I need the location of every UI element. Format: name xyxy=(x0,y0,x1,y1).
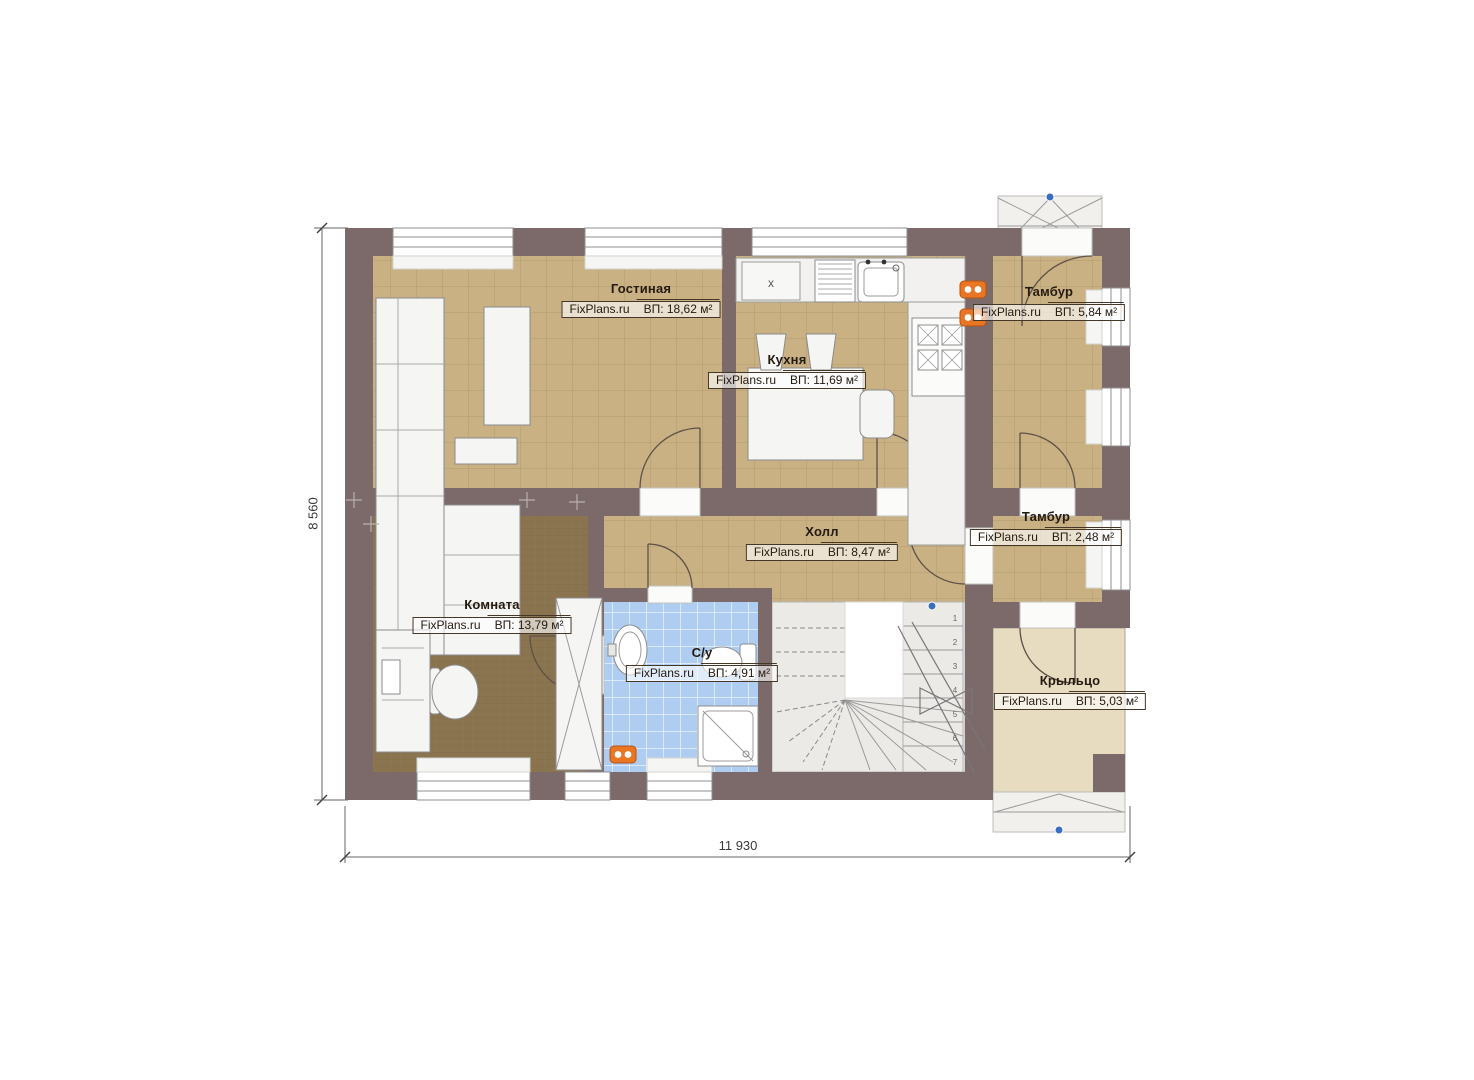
svg-text:5: 5 xyxy=(953,710,958,719)
svg-text:1: 1 xyxy=(953,614,958,623)
room-area: ВП: 4,91 м² xyxy=(701,663,777,682)
room-area: ВП: 13,79 м² xyxy=(488,615,571,634)
room-label-bedroom: Комната FixPlans.ruВП: 13,79 м² xyxy=(413,597,572,635)
wall-vestibule2-bottom-left xyxy=(993,602,1020,628)
window xyxy=(565,772,610,800)
room-label-porch: Крыльцо FixPlans.ruВП: 5,03 м² xyxy=(994,673,1146,711)
wall-kitchen-vestibule-lower xyxy=(965,584,993,628)
porch-pillar xyxy=(1093,754,1125,792)
room-name: Тамбур xyxy=(973,284,1125,300)
window xyxy=(1102,388,1130,446)
dimension-width: 11 930 xyxy=(698,838,778,853)
window xyxy=(647,772,712,800)
floor-plan-page: x xyxy=(0,0,1474,1080)
console-table xyxy=(484,307,530,425)
svg-text:6: 6 xyxy=(953,734,958,743)
window xyxy=(417,772,530,800)
marker-dot xyxy=(1055,826,1063,834)
wall-middle-2 xyxy=(700,488,877,516)
watermark: FixPlans.ru xyxy=(709,371,783,389)
watermark: FixPlans.ru xyxy=(974,303,1048,321)
watermark: FixPlans.ru xyxy=(995,692,1069,710)
chair xyxy=(860,390,894,438)
window xyxy=(752,228,907,256)
wall-left xyxy=(345,228,373,800)
desk-item xyxy=(382,660,400,694)
radiator xyxy=(610,746,636,763)
room-name: Крыльцо xyxy=(994,673,1146,689)
room-area: ВП: 8,47 м² xyxy=(821,542,897,561)
shower-tray xyxy=(698,706,758,766)
svg-text:3: 3 xyxy=(953,662,958,671)
marker-dot xyxy=(928,602,936,610)
room-name: Гостиная xyxy=(562,281,721,297)
room-label-hall: Холл FixPlans.ruВП: 8,47 м² xyxy=(746,524,898,562)
room-name: Кухня xyxy=(708,352,866,368)
room-name: Холл xyxy=(746,524,898,540)
room-label-bathroom: С/у FixPlans.ruВП: 4,91 м² xyxy=(626,645,778,683)
room-area: ВП: 11,69 м² xyxy=(783,370,865,389)
svg-text:2: 2 xyxy=(953,638,958,647)
watermark: FixPlans.ru xyxy=(971,528,1045,546)
room-name: Тамбур xyxy=(970,509,1122,525)
kitchen-cabinet-mark: x xyxy=(768,276,774,290)
desk-chair xyxy=(432,665,478,719)
room-area: ВП: 5,84 м² xyxy=(1048,302,1124,321)
watermark: FixPlans.ru xyxy=(563,300,637,318)
floor-plan-drawing: x xyxy=(0,0,1474,1080)
watermark: FixPlans.ru xyxy=(627,664,701,682)
room-area: ВП: 2,48 м² xyxy=(1045,527,1121,546)
room-area: ВП: 18,62 м² xyxy=(637,299,720,318)
svg-text:7: 7 xyxy=(953,758,958,767)
room-label-vestibule1: Тамбур FixPlans.ruВП: 5,84 м² xyxy=(973,284,1125,322)
room-area: ВП: 5,03 м² xyxy=(1069,691,1145,710)
room-label-living: Гостиная FixPlans.ruВП: 18,62 м² xyxy=(562,281,721,319)
kitchen-sink xyxy=(815,260,904,302)
room-name: Комната xyxy=(413,597,572,613)
window xyxy=(393,228,513,256)
svg-text:4: 4 xyxy=(953,686,958,695)
room-name: С/у xyxy=(626,645,778,661)
window xyxy=(585,228,722,256)
wall-vestibule2-bottom-right xyxy=(1075,602,1102,628)
coffee-table xyxy=(455,438,517,464)
stove xyxy=(912,318,965,396)
marker-dot xyxy=(1046,193,1054,201)
wall-bathroom-top-1 xyxy=(604,588,648,602)
watermark: FixPlans.ru xyxy=(747,543,821,561)
room-label-kitchen: Кухня FixPlans.ruВП: 11,69 м² xyxy=(708,352,866,390)
watermark: FixPlans.ru xyxy=(414,616,488,634)
room-label-vestibule2: Тамбур FixPlans.ruВП: 2,48 м² xyxy=(970,509,1122,547)
stair-void xyxy=(845,602,903,698)
wall-right-lower xyxy=(965,628,993,772)
dimension-height: 8 560 xyxy=(306,485,321,543)
